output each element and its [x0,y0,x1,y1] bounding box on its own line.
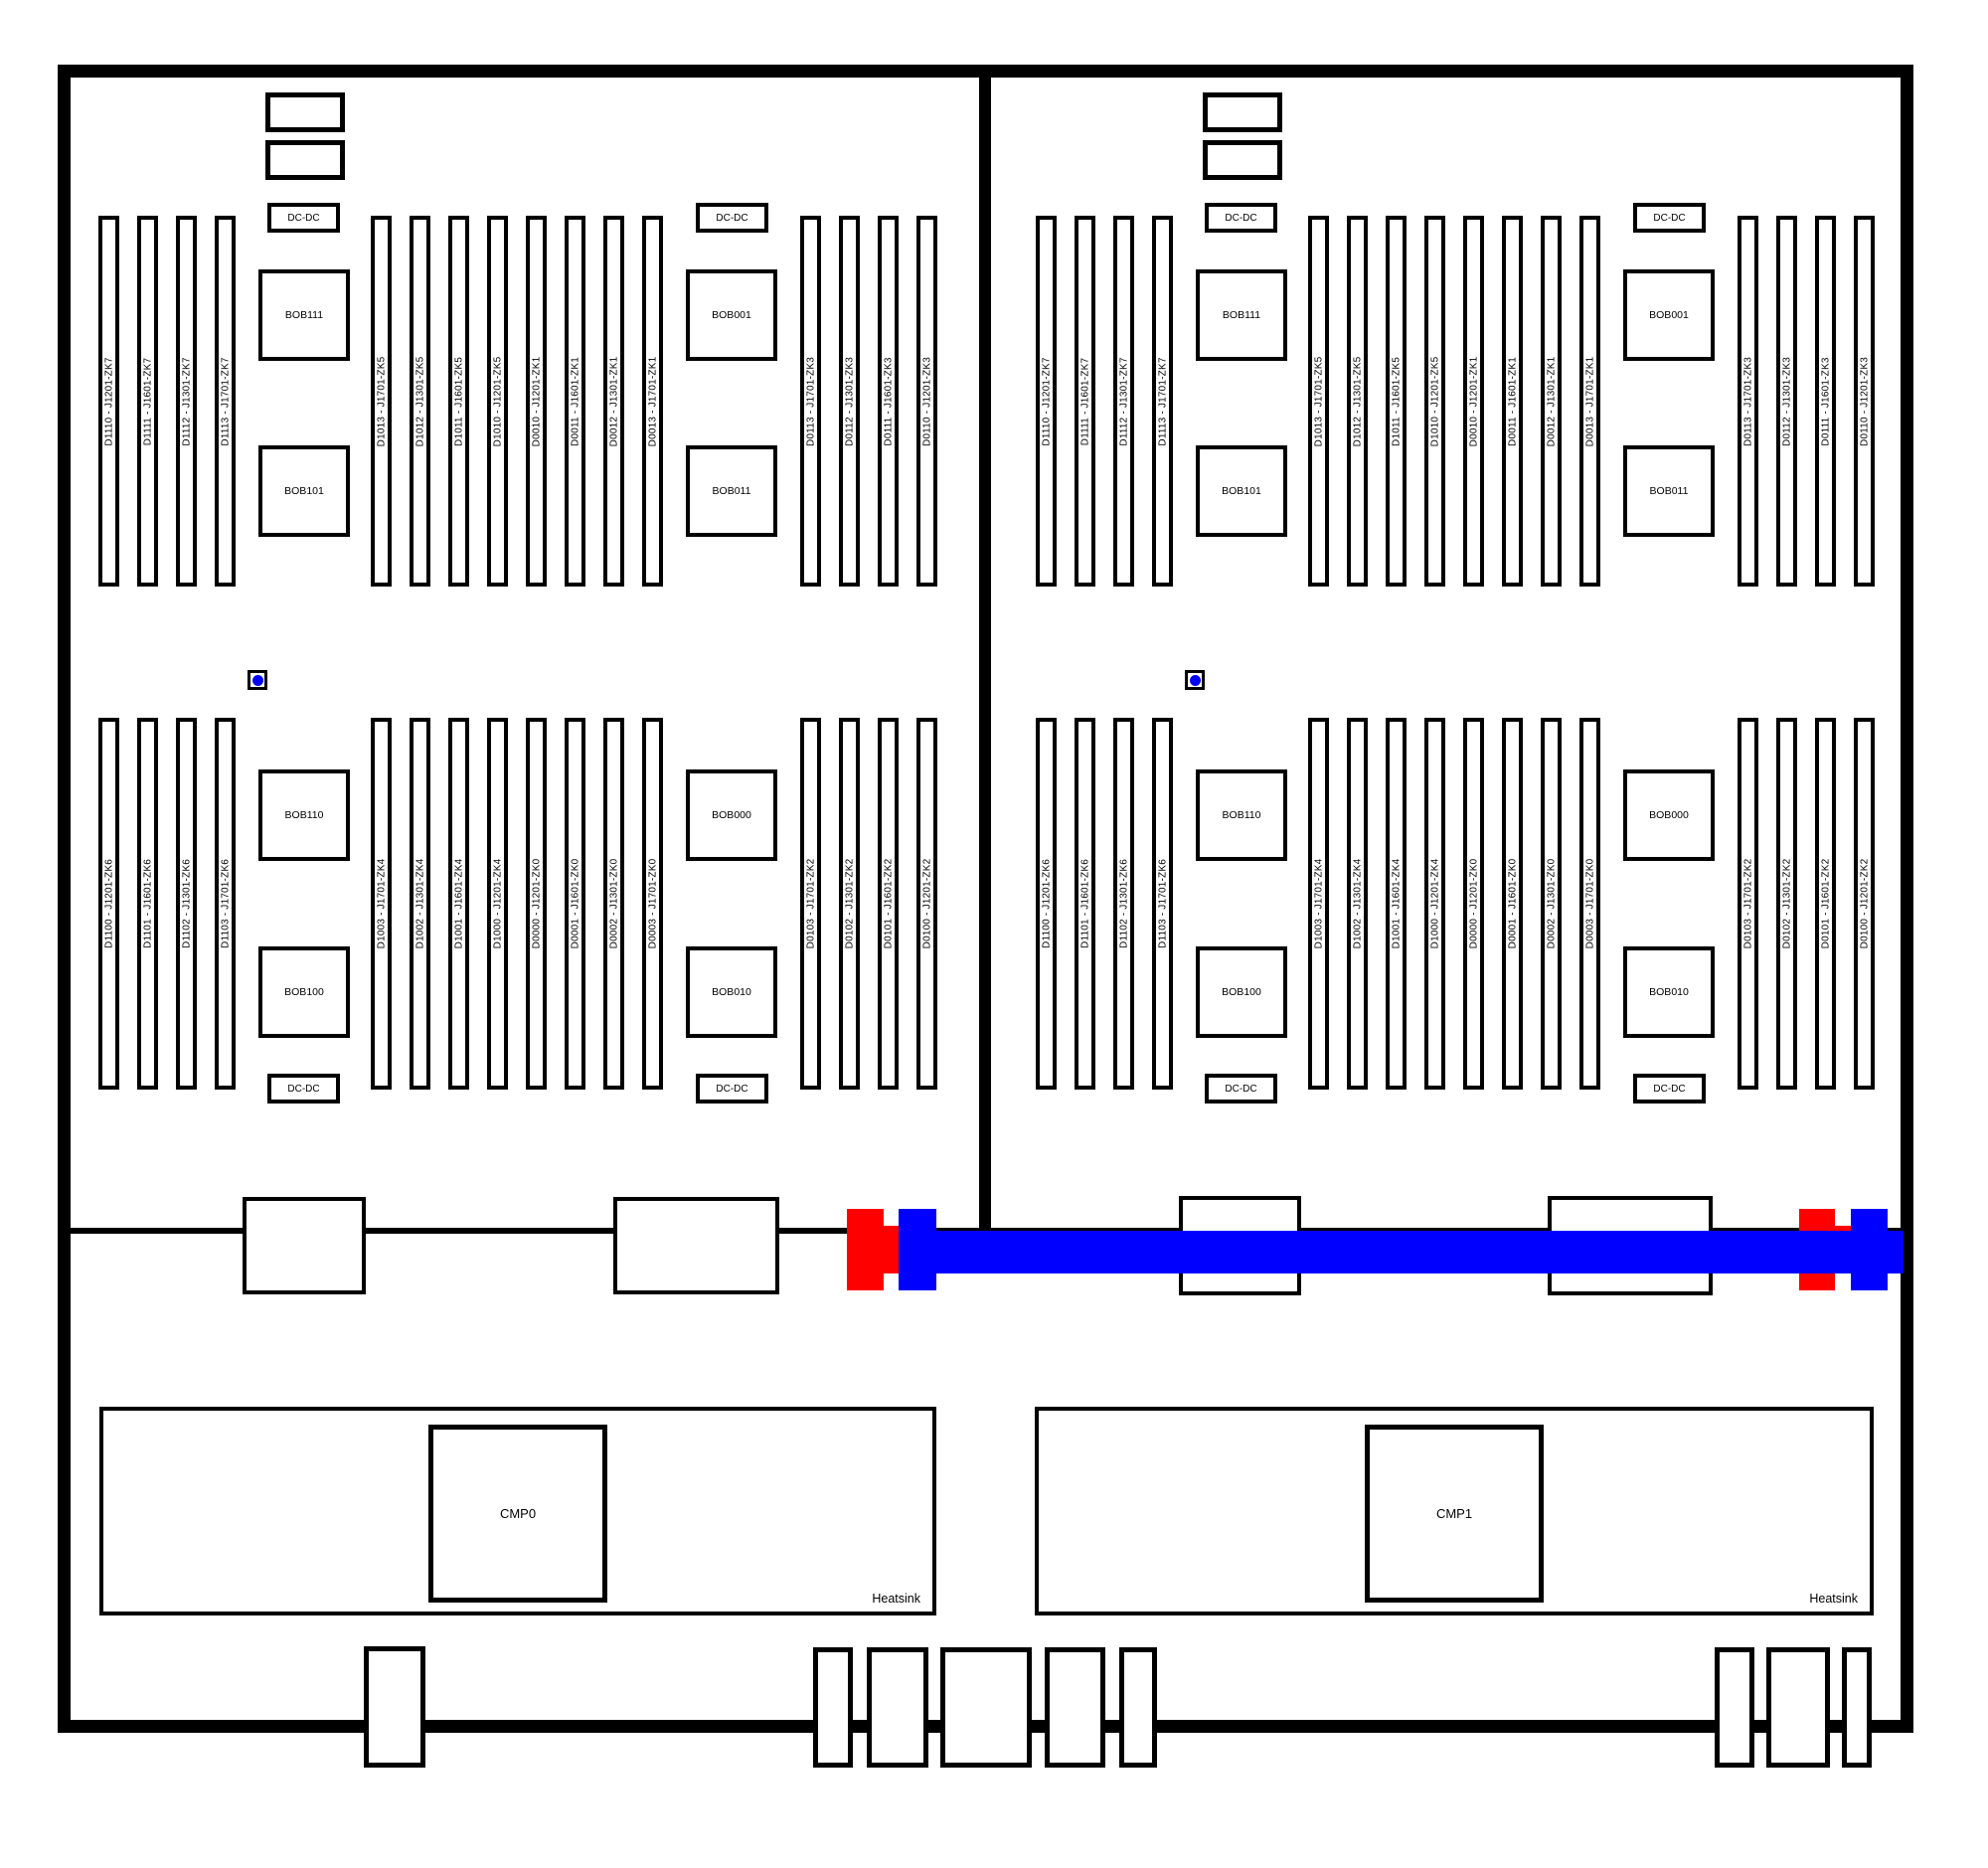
edge-connector [940,1647,1032,1768]
dc-dc-converter: DC-DC [1633,1074,1706,1104]
blue-flyover-cable [884,1231,1904,1274]
bob-label: BOB100 [1222,986,1261,998]
dimm-slot-label: D0003 - J1701-ZK0 [1584,859,1595,949]
dimm-slot: D1003 - J1701-ZK4 [1308,718,1329,1090]
dimm-slot-label: D0001 - J1601-ZK0 [1507,859,1518,949]
bob-chip: BOB101 [1196,445,1287,537]
dc-dc-converter: DC-DC [267,1074,340,1104]
bob-chip: BOB110 [258,769,350,861]
dimm-slot: D0101 - J1601-ZK2 [878,718,899,1090]
dimm-slot: D0012 - J1301-ZK1 [603,216,624,587]
dc-dc-label: DC-DC [287,213,319,224]
bob-chip: BOB010 [1623,946,1715,1038]
dimm-slot: D0001 - J1601-ZK0 [565,718,585,1090]
dimm-slot-label: D0103 - J1701-ZK2 [1742,859,1753,949]
dimm-slot: D0103 - J1701-ZK2 [1738,718,1758,1090]
dimm-slot: D1112 - J1301-ZK7 [1113,216,1134,587]
dimm-slot: D1101 - J1601-ZK6 [137,718,158,1090]
bob-label: BOB001 [712,309,751,321]
dimm-slot-label: D1001 - J1601-ZK4 [453,859,464,949]
dimm-slot-label: D1103 - J1701-ZK6 [1157,859,1168,948]
dimm-slot-label: D1002 - J1301-ZK4 [1352,859,1363,949]
dimm-slot: D1103 - J1701-ZK6 [1152,718,1173,1090]
dimm-slot-label: D1013 - J1701-ZK5 [1313,356,1324,446]
dimm-slot-label: D1112 - J1301-ZK7 [1118,357,1129,445]
bob-chip: BOB101 [258,445,350,537]
dimm-slot-label: D1111 - J1601-ZK7 [142,357,153,444]
bob-chip: BOB111 [258,269,350,361]
dimm-slot: D0100 - J1201-ZK2 [1854,718,1875,1090]
dimm-group: D1110 - J1201-ZK7 D1111 - J1601-ZK7 D111… [98,216,236,587]
heatsink-label: Heatsink [1809,1592,1858,1606]
bob-chip: BOB111 [1196,269,1287,361]
dimm-slot: D0013 - J1701-ZK1 [1579,216,1600,587]
dimm-slot-label: D0000 - J1201-ZK0 [1468,859,1479,949]
dimm-slot: D0111 - J1601-ZK3 [878,216,899,587]
dimm-slot: D1010 - J1201-ZK5 [487,216,508,587]
dimm-slot: D0000 - J1201-ZK0 [1463,718,1484,1090]
dimm-slot-label: D0113 - J1701-ZK3 [805,357,816,446]
bob-label: BOB101 [284,485,324,497]
dimm-slot: D0013 - J1701-ZK1 [642,216,663,587]
edge-connector [813,1647,853,1768]
bob-chip: BOB011 [1623,445,1715,537]
dimm-slot-label: D1101 - J1601-ZK6 [142,859,153,948]
dimm-slot-label: D1100 - J1201-ZK6 [1041,859,1052,948]
bob-label: BOB001 [1649,309,1689,321]
component-box-top-1 [1203,92,1282,132]
bob-chip: BOB010 [686,946,777,1038]
dimm-slot: D1100 - J1201-ZK6 [1036,718,1057,1090]
dimm-slot: D1001 - J1601-ZK4 [448,718,469,1090]
dimm-slot-label: D0012 - J1301-ZK1 [608,356,619,446]
board-connector [613,1197,779,1294]
dimm-slot-label: D1113 - J1701-ZK7 [1157,357,1168,445]
dimm-slot-label: D1101 - J1601-ZK6 [1079,859,1090,948]
dimm-slot-label: D1111 - J1601-ZK7 [1079,357,1090,444]
red-connector-left [847,1209,884,1290]
dimm-group: D1003 - J1701-ZK4 D1002 - J1301-ZK4 D100… [371,718,663,1090]
dimm-slot-label: D1011 - J1601-ZK5 [1391,357,1402,446]
bob-chip: BOB011 [686,445,777,537]
dimm-group: D0113 - J1701-ZK3 D0112 - J1301-ZK3 D011… [800,216,937,587]
dc-dc-converter: DC-DC [1205,1074,1277,1104]
dimm-slot-label: D0011 - J1601-ZK1 [1507,357,1518,446]
dimm-slot: D1102 - J1301-ZK6 [1113,718,1134,1090]
dimm-slot-label: D1110 - J1201-ZK7 [1041,357,1052,445]
dimm-slot-label: D0100 - J1201-ZK2 [921,859,932,949]
edge-connector [1766,1647,1830,1768]
bob-label: BOB101 [1222,485,1261,497]
bob-chip: BOB001 [1623,269,1715,361]
dimm-slot: D1102 - J1301-ZK6 [176,718,197,1090]
component-box-top-2 [265,140,345,180]
dimm-slot-label: D0011 - J1601-ZK1 [570,357,580,446]
dimm-slot: D0113 - J1701-ZK3 [1738,216,1758,587]
dimm-slot: D0003 - J1701-ZK0 [1579,718,1600,1090]
heatsink-label: Heatsink [872,1592,920,1606]
dimm-slot-label: D0110 - J1201-ZK3 [1859,357,1870,446]
dimm-slot-label: D0101 - J1601-ZK2 [1820,859,1831,949]
bob-chip: BOB001 [686,269,777,361]
dimm-slot-label: D0103 - J1701-ZK2 [805,859,816,949]
dc-dc-converter: DC-DC [696,203,768,233]
dimm-slot: D1103 - J1701-ZK6 [215,718,236,1090]
edge-connector [364,1646,425,1768]
dimm-slot-label: D0002 - J1301-ZK0 [608,859,619,949]
dimm-slot-label: D1001 - J1601-ZK4 [1391,859,1402,949]
dimm-slot-label: D1010 - J1201-ZK5 [492,356,503,446]
bob-label: BOB010 [712,986,751,998]
dimm-slot: D0112 - J1301-ZK3 [1776,216,1797,587]
dimm-slot: D1003 - J1701-ZK4 [371,718,392,1090]
dimm-slot: D1000 - J1201-ZK4 [487,718,508,1090]
cmp-chip: CMP0 [428,1425,607,1603]
dimm-slot: D1110 - J1201-ZK7 [1036,216,1057,587]
dc-dc-label: DC-DC [716,1084,747,1095]
dimm-slot-label: D1012 - J1301-ZK5 [414,356,425,446]
bob-label: BOB000 [1649,809,1689,821]
dc-dc-label: DC-DC [287,1084,319,1095]
motherboard-diagram: DC-DC DC-DC DC-DC DC-DC BOB111 BOB10 [0,0,1988,1868]
dimm-slot: D0101 - J1601-ZK2 [1815,718,1836,1090]
component-box-top-1 [265,92,345,132]
dimm-slot: D0002 - J1301-ZK0 [1541,718,1562,1090]
dimm-slot-label: D0112 - J1301-ZK3 [1781,357,1792,446]
dimm-slot: D0010 - J1201-ZK1 [1463,216,1484,587]
dimm-group: D1100 - J1201-ZK6 D1101 - J1601-ZK6 D110… [1036,718,1173,1090]
bob-label: BOB000 [712,809,751,821]
dc-dc-label: DC-DC [716,213,747,224]
dimm-slot: D1110 - J1201-ZK7 [98,216,119,587]
dimm-slot: D1101 - J1601-ZK6 [1075,718,1095,1090]
dimm-slot: D1013 - J1701-ZK5 [1308,216,1329,587]
dimm-slot: D1013 - J1701-ZK5 [371,216,392,587]
dimm-slot-label: D0110 - J1201-ZK3 [921,357,932,446]
dimm-slot: D1002 - J1301-ZK4 [410,718,430,1090]
dimm-slot: D1010 - J1201-ZK5 [1424,216,1445,587]
bob-label: BOB010 [1649,986,1689,998]
dc-dc-converter: DC-DC [1205,203,1277,233]
red-connector-stub-left [884,1226,899,1274]
bob-label: BOB110 [285,809,324,821]
bob-chip: BOB000 [686,769,777,861]
dimm-slot-label: D1100 - J1201-ZK6 [103,859,114,948]
dimm-slot: D1011 - J1601-ZK5 [448,216,469,587]
edge-connector [1842,1647,1872,1768]
dimm-slot-label: D0102 - J1301-ZK2 [1781,859,1792,949]
dimm-slot: D0102 - J1301-ZK2 [1776,718,1797,1090]
dimm-group: D1003 - J1701-ZK4 D1002 - J1301-ZK4 D100… [1308,718,1600,1090]
bob-chip: BOB100 [1196,946,1287,1038]
dimm-slot: D0111 - J1601-ZK3 [1815,216,1836,587]
dimm-slot: D0003 - J1701-ZK0 [642,718,663,1090]
dimm-slot-label: D0000 - J1201-ZK0 [531,859,542,949]
dc-dc-converter: DC-DC [1633,203,1706,233]
edge-connector [1045,1647,1105,1768]
dimm-slot-label: D1003 - J1701-ZK4 [1313,859,1324,949]
blue-connector-left [899,1209,936,1290]
dimm-slot: D1111 - J1601-ZK7 [137,216,158,587]
bob-chip: BOB100 [258,946,350,1038]
dimm-slot-label: D0002 - J1301-ZK0 [1546,859,1557,949]
dimm-slot-label: D1003 - J1701-ZK4 [376,859,387,949]
dc-dc-label: DC-DC [1653,1084,1685,1095]
dimm-slot-label: D1012 - J1301-ZK5 [1352,356,1363,446]
dimm-slot-label: D0003 - J1701-ZK0 [647,859,658,949]
dimm-slot: D1001 - J1601-ZK4 [1386,718,1407,1090]
dimm-slot-label: D1110 - J1201-ZK7 [103,357,114,445]
cmp-label: CMP0 [500,1506,536,1521]
dimm-slot-label: D0101 - J1601-ZK2 [883,859,894,949]
dimm-slot: D0110 - J1201-ZK3 [916,216,937,587]
heatsink: CMP1 Heatsink [1035,1407,1874,1615]
cmp-label: CMP1 [1436,1506,1472,1521]
dimm-slot: D0011 - J1601-ZK1 [1502,216,1523,587]
bob-label: BOB011 [1650,485,1689,497]
dimm-slot-label: D1011 - J1601-ZK5 [453,357,464,446]
dimm-slot: D0011 - J1601-ZK1 [565,216,585,587]
dimm-slot: D1012 - J1301-ZK5 [410,216,430,587]
dimm-slot: D1000 - J1201-ZK4 [1424,718,1445,1090]
bob-label: BOB011 [713,485,751,497]
component-box-top-2 [1203,140,1282,180]
dimm-slot: D0012 - J1301-ZK1 [1541,216,1562,587]
dimm-slot-label: D0111 - J1601-ZK3 [1820,357,1831,445]
dc-dc-converter: DC-DC [696,1074,768,1104]
dimm-group: D1100 - J1201-ZK6 D1101 - J1601-ZK6 D110… [98,718,236,1090]
dimm-slot-label: D1102 - J1301-ZK6 [181,859,192,948]
dimm-slot-label: D0013 - J1701-ZK1 [647,356,658,446]
blue-led-dot [1190,675,1201,686]
dimm-slot-label: D0111 - J1601-ZK3 [883,357,894,445]
dimm-slot-label: D0113 - J1701-ZK3 [1742,357,1753,446]
dimm-slot-label: D0102 - J1301-ZK2 [844,859,855,949]
bob-label: BOB110 [1223,809,1261,821]
dimm-slot: D0000 - J1201-ZK0 [526,718,547,1090]
dimm-group: D0103 - J1701-ZK2 D0102 - J1301-ZK2 D010… [800,718,937,1090]
bob-chip: BOB110 [1196,769,1287,861]
dimm-slot: D1113 - J1701-ZK7 [1152,216,1173,587]
dimm-slot: D0110 - J1201-ZK3 [1854,216,1875,587]
dimm-slot: D1112 - J1301-ZK7 [176,216,197,587]
dimm-slot-label: D1010 - J1201-ZK5 [1429,356,1440,446]
cmp-chip: CMP1 [1365,1425,1544,1603]
dc-dc-label: DC-DC [1653,213,1685,224]
bob-label: BOB111 [285,309,323,321]
dimm-slot-label: D1103 - J1701-ZK6 [220,859,231,948]
blue-led-dot [252,675,263,686]
dimm-slot-label: D0100 - J1201-ZK2 [1859,859,1870,949]
dimm-slot: D1100 - J1201-ZK6 [98,718,119,1090]
dimm-slot-label: D1112 - J1301-ZK7 [181,357,192,445]
indicator-box [1185,670,1205,690]
dc-dc-converter: DC-DC [267,203,340,233]
bob-label: BOB111 [1223,309,1260,321]
dimm-slot: D1113 - J1701-ZK7 [215,216,236,587]
dimm-slot-label: D1002 - J1301-ZK4 [414,859,425,949]
dimm-slot-label: D0010 - J1201-ZK1 [1468,356,1479,446]
dimm-slot-label: D0112 - J1301-ZK3 [844,357,855,446]
dimm-slot-label: D0013 - J1701-ZK1 [1584,356,1595,446]
dimm-slot: D0002 - J1301-ZK0 [603,718,624,1090]
edge-connector [867,1647,928,1768]
dimm-slot: D1111 - J1601-ZK7 [1075,216,1095,587]
bob-label: BOB100 [284,986,324,998]
dimm-slot: D0112 - J1301-ZK3 [839,216,860,587]
section-divider-line [979,78,991,1234]
dimm-slot-label: D1000 - J1201-ZK4 [492,859,503,949]
dimm-slot-label: D1000 - J1201-ZK4 [1429,859,1440,949]
indicator-box [248,670,267,690]
dimm-slot: D1002 - J1301-ZK4 [1347,718,1368,1090]
dc-dc-label: DC-DC [1225,213,1256,224]
dimm-slot-label: D0010 - J1201-ZK1 [531,356,542,446]
edge-connector [1715,1647,1754,1768]
dimm-group: D1013 - J1701-ZK5 D1012 - J1301-ZK5 D101… [1308,216,1600,587]
dimm-slot-label: D1013 - J1701-ZK5 [376,356,387,446]
dimm-slot: D0100 - J1201-ZK2 [916,718,937,1090]
dimm-slot: D0001 - J1601-ZK0 [1502,718,1523,1090]
dimm-slot-label: D0012 - J1301-ZK1 [1546,356,1557,446]
dimm-group: D0103 - J1701-ZK2 D0102 - J1301-ZK2 D010… [1738,718,1875,1090]
dimm-slot: D0103 - J1701-ZK2 [800,718,821,1090]
dimm-slot-label: D1102 - J1301-ZK6 [1118,859,1129,948]
dimm-slot: D1011 - J1601-ZK5 [1386,216,1407,587]
dimm-slot: D0102 - J1301-ZK2 [839,718,860,1090]
bob-chip: BOB000 [1623,769,1715,861]
dimm-group: D1110 - J1201-ZK7 D1111 - J1601-ZK7 D111… [1036,216,1173,587]
dc-dc-label: DC-DC [1225,1084,1256,1095]
board-connector [243,1197,366,1294]
dimm-group: D0113 - J1701-ZK3 D0112 - J1301-ZK3 D011… [1738,216,1875,587]
dimm-slot: D1012 - J1301-ZK5 [1347,216,1368,587]
dimm-slot: D0010 - J1201-ZK1 [526,216,547,587]
heatsink: CMP0 Heatsink [99,1407,936,1615]
edge-connector [1119,1647,1157,1768]
dimm-slot: D0113 - J1701-ZK3 [800,216,821,587]
blue-connector-right [1851,1209,1888,1290]
dimm-slot-label: D1113 - J1701-ZK7 [220,357,231,445]
dimm-slot-label: D0001 - J1601-ZK0 [570,859,580,949]
dimm-group: D1013 - J1701-ZK5 D1012 - J1301-ZK5 D101… [371,216,663,587]
